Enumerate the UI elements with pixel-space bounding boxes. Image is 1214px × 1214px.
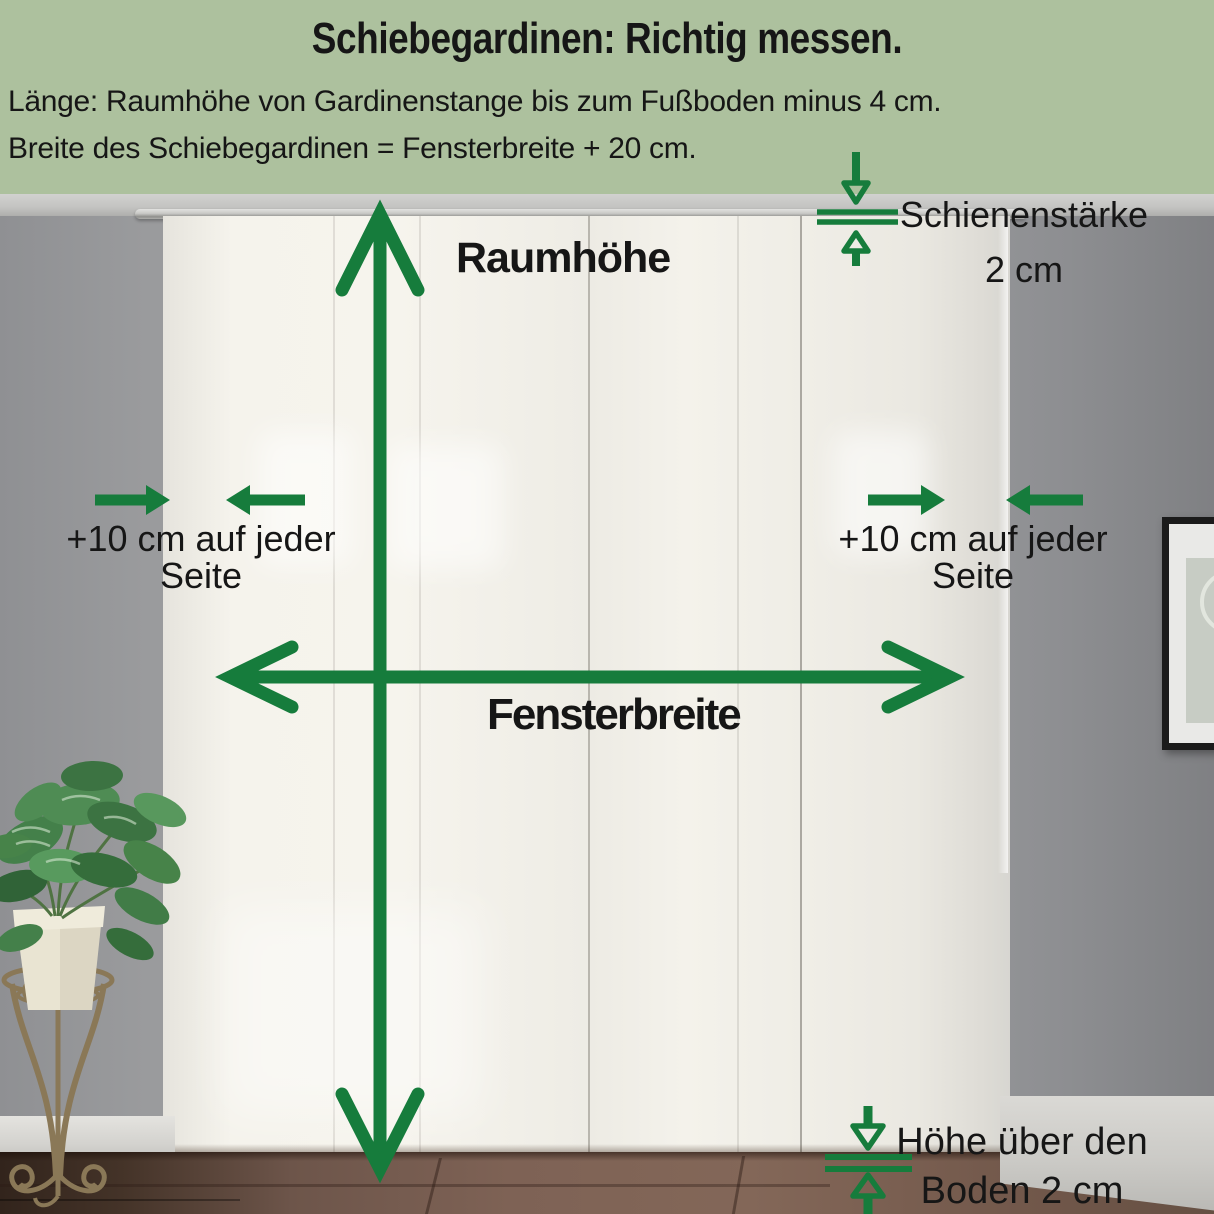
curtain-panel-3 xyxy=(800,216,1010,1154)
header-banner: Schiebegardinen: Richtig messen. Länge: … xyxy=(0,0,1214,194)
rail-thickness-label-line2: 2 cm xyxy=(898,252,1150,288)
rail-thickness-label: Schienenstärke 2 cm xyxy=(898,197,1150,288)
plant-pot xyxy=(13,906,105,1010)
instruction-length: Länge: Raumhöhe von Gardinenstange bis z… xyxy=(8,85,941,119)
curtain-panel-2 xyxy=(588,216,802,1154)
measurement-infographic: Schiebegardinen: Richtig messen. Länge: … xyxy=(0,0,1214,1214)
right-offset-label: +10 cm auf jeder Seite xyxy=(832,520,1114,594)
picture-frame-art xyxy=(1186,558,1214,723)
left-offset-label-line1: +10 cm auf jeder xyxy=(60,520,342,557)
picture-frame-circle-motif xyxy=(1200,570,1214,634)
curtain-crease xyxy=(737,216,739,1154)
right-offset-label-line1: +10 cm auf jeder xyxy=(832,520,1114,557)
curtain-reflection xyxy=(223,906,483,1116)
picture-frame-mat xyxy=(1169,524,1214,743)
floor-gap-label-line2: Boden 2 cm xyxy=(894,1172,1150,1210)
room-height-label: Raumhöhe xyxy=(456,234,670,283)
sliding-curtain-panels xyxy=(163,216,1008,1154)
floor-gap-label-line1: Höhe über den xyxy=(894,1123,1150,1161)
picture-frame-image xyxy=(1162,517,1214,750)
page-title: Schiebegardinen: Richtig messen. xyxy=(97,14,1117,64)
window-width-label: Fensterbreite xyxy=(487,690,740,740)
instruction-width: Breite des Schiebegardinen = Fensterbrei… xyxy=(8,132,696,166)
curtain-reflection xyxy=(388,444,503,569)
left-offset-label-line2: Seite xyxy=(60,557,342,594)
right-offset-label-line2: Seite xyxy=(832,557,1114,594)
potted-plant-image xyxy=(0,748,190,1214)
rail-thickness-label-line1: Schienenstärke xyxy=(898,197,1150,233)
floor-gap-label: Höhe über den Boden 2 cm xyxy=(894,1123,1150,1210)
left-offset-label: +10 cm auf jeder Seite xyxy=(60,520,342,594)
